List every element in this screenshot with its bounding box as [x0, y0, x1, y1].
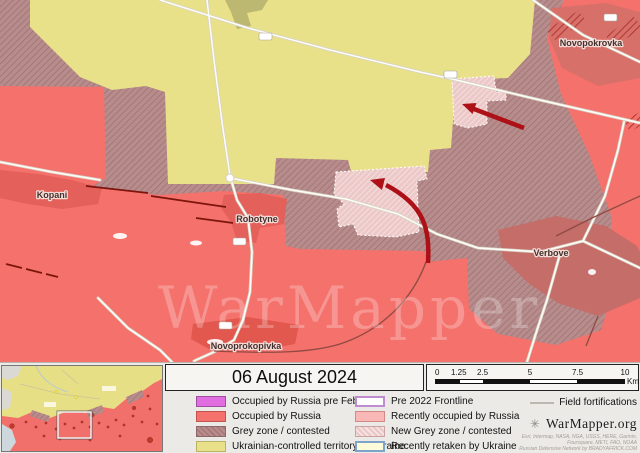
scalebar-tick: 1.25: [451, 368, 467, 377]
scalebar-box: 0 1.25 2.5 5 7.5 10 Km: [426, 364, 639, 391]
map-credits: Esri, Intermap, NASA, NGA, USGS, HERE, G…: [519, 434, 637, 452]
legend-date-box: 06 August 2024: [165, 364, 424, 391]
scalebar-tick: 0: [435, 368, 439, 377]
legend-item-label: Recently occupied by Russia: [391, 411, 519, 422]
road-interchange: [226, 174, 234, 182]
swatch-pre-2022-frontline: [355, 396, 385, 407]
label-novoprokopivka: Novoprokopivka: [211, 341, 283, 351]
legend-item-label: Recently retaken by Ukraine: [391, 441, 517, 452]
swatch-occupied-pre-2022: [196, 396, 226, 407]
brand-name: WarMapper.org: [546, 416, 637, 432]
swatch-recently-retaken: [355, 441, 385, 452]
swatch-new-grey-zone: [355, 426, 385, 437]
brand-row: ✳ WarMapper.org: [530, 416, 637, 432]
legend-item: Pre 2022 Frontline: [355, 394, 519, 409]
scalebar-tick: 5: [528, 368, 532, 377]
label-robotyne: Robotyne: [236, 214, 278, 224]
watermark-text: WarMapper: [158, 274, 541, 342]
legend-item: New Grey zone / contested: [355, 424, 519, 439]
main-map: WarMapper Kopani Robotyne Novoprokopivka…: [0, 0, 640, 362]
legend-item: Recently retaken by Ukraine: [355, 439, 519, 453]
label-kopani: Kopani: [37, 190, 68, 200]
legend-item-label: New Grey zone / contested: [391, 426, 512, 437]
legend-panel: 06 August 2024 0 1.25 2.5 5 7.5 10 Km: [0, 362, 640, 453]
label-verbove: Verbove: [533, 248, 568, 258]
scalebar-unit: Km: [627, 377, 639, 386]
minimap-canvas: [2, 366, 162, 451]
scalebar-tick: 10: [621, 368, 630, 377]
scalebar-segments: [435, 379, 625, 384]
field-fortifications-legend: Field fortifications: [530, 397, 637, 408]
swatch-ukraine-controlled: [196, 441, 226, 452]
map-date-title: 06 August 2024: [232, 367, 357, 388]
swatch-recently-occupied: [355, 411, 385, 422]
overview-minimap: [1, 365, 163, 452]
label-novopokrovka: Novopokrovka: [560, 38, 624, 48]
scalebar: 0 1.25 2.5 5 7.5 10 Km: [435, 368, 625, 388]
swatch-occupied: [196, 411, 226, 422]
legend-item-label: Occupied by Russia: [232, 411, 321, 422]
fortification-line-icon: [530, 402, 554, 404]
scalebar-tick: 2.5: [477, 368, 488, 377]
legend-item-label: Grey zone / contested: [232, 426, 330, 437]
legend-item: Recently occupied by Russia: [355, 409, 519, 424]
compass-icon: ✳: [530, 417, 540, 431]
scalebar-tick: 7.5: [572, 368, 583, 377]
swatch-grey-zone: [196, 426, 226, 437]
legend-item-label: Pre 2022 Frontline: [391, 396, 473, 407]
fortifications-label: Field fortifications: [559, 397, 637, 408]
credit-line: Russian Defensive Network by BRADYAFRICK…: [519, 446, 637, 452]
legend-right-column: Pre 2022 Frontline Recently occupied by …: [355, 394, 519, 453]
warmapper-map-page: WarMapper Kopani Robotyne Novoprokopivka…: [0, 0, 640, 453]
map-canvas: WarMapper Kopani Robotyne Novoprokopivka…: [0, 0, 640, 362]
